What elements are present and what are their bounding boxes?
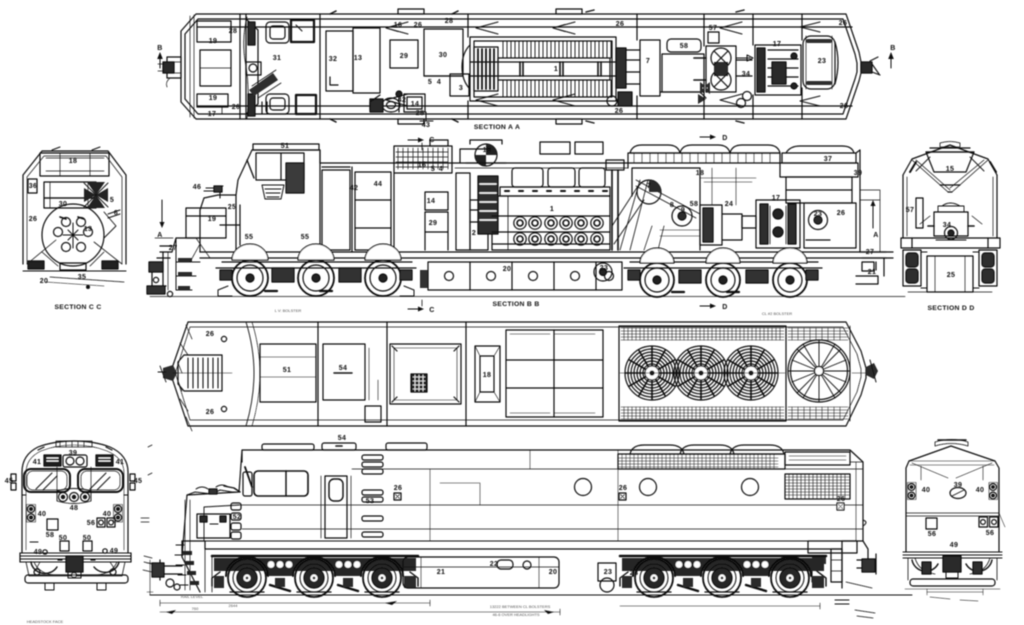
svg-text:B: B — [890, 45, 895, 52]
svg-text:54: 54 — [338, 435, 347, 442]
svg-text:56: 56 — [87, 520, 96, 527]
svg-text:D: D — [722, 304, 727, 311]
svg-text:50: 50 — [59, 535, 68, 542]
svg-text:16: 16 — [418, 162, 427, 169]
svg-text:27: 27 — [169, 245, 178, 252]
svg-text:40: 40 — [103, 511, 112, 518]
svg-text:SECTION C C: SECTION C C — [54, 304, 101, 311]
svg-text:41: 41 — [33, 459, 42, 466]
svg-text:13222 BETWEEN CL BOLSTERS: 13222 BETWEEN CL BOLSTERS — [490, 604, 551, 609]
svg-text:20: 20 — [549, 569, 558, 576]
svg-text:4: 4 — [437, 79, 441, 86]
svg-text:35: 35 — [78, 274, 87, 281]
svg-text:26: 26 — [615, 108, 624, 115]
svg-text:17: 17 — [773, 41, 782, 48]
svg-text:HEADSTOCK FACE: HEADSTOCK FACE — [27, 619, 64, 624]
svg-text:58: 58 — [680, 43, 689, 50]
svg-text:39: 39 — [854, 170, 863, 177]
svg-text:A: A — [157, 232, 162, 239]
svg-text:36: 36 — [29, 183, 38, 190]
svg-text:23: 23 — [818, 58, 827, 65]
svg-text:26: 26 — [414, 22, 423, 29]
svg-text:56: 56 — [986, 530, 995, 537]
svg-text:26: 26 — [206, 331, 215, 338]
svg-text:26: 26 — [206, 409, 215, 416]
svg-text:18: 18 — [696, 170, 705, 177]
svg-text:6: 6 — [114, 210, 118, 217]
svg-text:23: 23 — [600, 265, 609, 272]
svg-text:49: 49 — [34, 549, 43, 556]
svg-text:28: 28 — [229, 28, 238, 35]
svg-text:23: 23 — [814, 211, 823, 218]
svg-text:51: 51 — [283, 367, 292, 374]
svg-text:20: 20 — [503, 266, 512, 273]
svg-text:14: 14 — [411, 101, 420, 108]
svg-text:32: 32 — [329, 56, 338, 63]
svg-text:26: 26 — [837, 210, 846, 217]
svg-text:2: 2 — [472, 230, 476, 237]
svg-text:SECTION D D: SECTION D D — [927, 305, 974, 312]
svg-text:26: 26 — [616, 21, 625, 28]
svg-text:8: 8 — [670, 202, 674, 209]
svg-text:SECTION B B: SECTION B B — [492, 301, 539, 308]
svg-text:26: 26 — [29, 216, 38, 223]
svg-text:53: 53 — [366, 498, 375, 505]
svg-text:760: 760 — [192, 606, 199, 611]
svg-text:29: 29 — [429, 220, 438, 227]
svg-text:20: 20 — [40, 278, 49, 285]
svg-text:SECTION A A: SECTION A A — [474, 124, 520, 131]
svg-text:26: 26 — [840, 103, 849, 110]
svg-text:17: 17 — [208, 111, 217, 118]
svg-text:49: 49 — [110, 548, 119, 555]
svg-text:7: 7 — [646, 58, 650, 65]
svg-text:22: 22 — [490, 561, 499, 568]
svg-text:26: 26 — [619, 485, 628, 492]
svg-text:30: 30 — [439, 52, 448, 59]
svg-text:55: 55 — [301, 234, 310, 241]
svg-text:18: 18 — [483, 372, 492, 379]
svg-text:18: 18 — [69, 158, 78, 165]
svg-text:4: 4 — [439, 166, 443, 173]
svg-text:25: 25 — [228, 204, 237, 211]
svg-text:42: 42 — [398, 97, 407, 104]
svg-text:50: 50 — [83, 535, 92, 542]
svg-text:17: 17 — [772, 195, 781, 202]
svg-text:26: 26 — [232, 104, 241, 111]
svg-text:15: 15 — [946, 166, 955, 173]
svg-text:26: 26 — [394, 485, 403, 492]
svg-text:5: 5 — [428, 79, 432, 86]
svg-text:57: 57 — [906, 207, 915, 214]
svg-text:19: 19 — [208, 216, 217, 223]
svg-text:58: 58 — [690, 201, 699, 208]
svg-text:21: 21 — [437, 569, 446, 576]
svg-text:19: 19 — [209, 95, 218, 102]
svg-text:42: 42 — [350, 185, 359, 192]
svg-text:7: 7 — [647, 183, 651, 190]
svg-text:28: 28 — [416, 110, 425, 117]
svg-text:23: 23 — [604, 569, 613, 576]
svg-text:L V: BOLSTER: L V: BOLSTER — [275, 308, 302, 313]
svg-text:55: 55 — [245, 234, 254, 241]
svg-text:9: 9 — [681, 207, 685, 214]
svg-text:13: 13 — [354, 55, 363, 62]
svg-text:24: 24 — [630, 570, 639, 577]
svg-text:14: 14 — [427, 198, 436, 205]
svg-text:39: 39 — [954, 482, 963, 489]
svg-text:44: 44 — [374, 181, 383, 188]
svg-text:46: 46 — [193, 184, 202, 191]
svg-text:25: 25 — [947, 272, 956, 279]
svg-text:45: 45 — [5, 478, 14, 485]
svg-text:46-6 OVER HEADLIGHTS: 46-6 OVER HEADLIGHTS — [492, 612, 539, 617]
svg-text:51: 51 — [281, 143, 290, 150]
svg-text:56: 56 — [928, 531, 937, 538]
svg-text:D: D — [722, 135, 727, 142]
svg-text:31: 31 — [273, 55, 282, 62]
svg-text:57: 57 — [709, 25, 718, 32]
svg-text:CL #2 BOLSTER: CL #2 BOLSTER — [762, 311, 792, 316]
svg-text:28: 28 — [445, 18, 454, 25]
svg-text:C: C — [429, 307, 434, 314]
svg-text:B: B — [157, 45, 162, 52]
svg-text:40: 40 — [976, 487, 985, 494]
svg-text:21: 21 — [868, 269, 877, 276]
svg-text:49: 49 — [950, 542, 959, 549]
svg-text:58: 58 — [46, 532, 55, 539]
svg-text:30: 30 — [59, 201, 68, 208]
svg-text:1: 1 — [554, 66, 558, 73]
svg-text:34: 34 — [742, 71, 751, 78]
svg-text:13: 13 — [84, 226, 93, 233]
svg-text:16: 16 — [394, 22, 403, 29]
svg-text:54: 54 — [339, 365, 348, 372]
svg-text:18: 18 — [483, 147, 492, 154]
svg-text:43: 43 — [422, 122, 431, 129]
svg-text:3: 3 — [459, 85, 463, 92]
svg-text:24: 24 — [725, 201, 734, 208]
svg-text:29: 29 — [400, 53, 409, 60]
svg-text:41: 41 — [116, 459, 125, 466]
svg-text:39: 39 — [69, 450, 78, 457]
svg-text:2644: 2644 — [229, 603, 239, 608]
svg-text:5: 5 — [110, 197, 114, 204]
svg-text:RAIL LEVEL: RAIL LEVEL — [181, 594, 204, 599]
svg-text:34: 34 — [943, 222, 952, 229]
svg-text:26: 26 — [837, 496, 846, 503]
svg-text:52: 52 — [233, 514, 242, 521]
svg-text:45: 45 — [134, 478, 143, 485]
svg-text:1: 1 — [550, 206, 554, 213]
svg-text:48: 48 — [70, 505, 79, 512]
svg-text:19: 19 — [209, 38, 218, 45]
svg-text:A: A — [873, 232, 878, 239]
svg-text:27: 27 — [866, 249, 875, 256]
svg-text:40: 40 — [922, 487, 931, 494]
svg-text:5: 5 — [431, 166, 435, 173]
svg-text:37: 37 — [824, 156, 833, 163]
svg-text:40: 40 — [38, 511, 47, 518]
svg-text:C: C — [429, 137, 434, 144]
svg-text:26: 26 — [839, 20, 848, 27]
